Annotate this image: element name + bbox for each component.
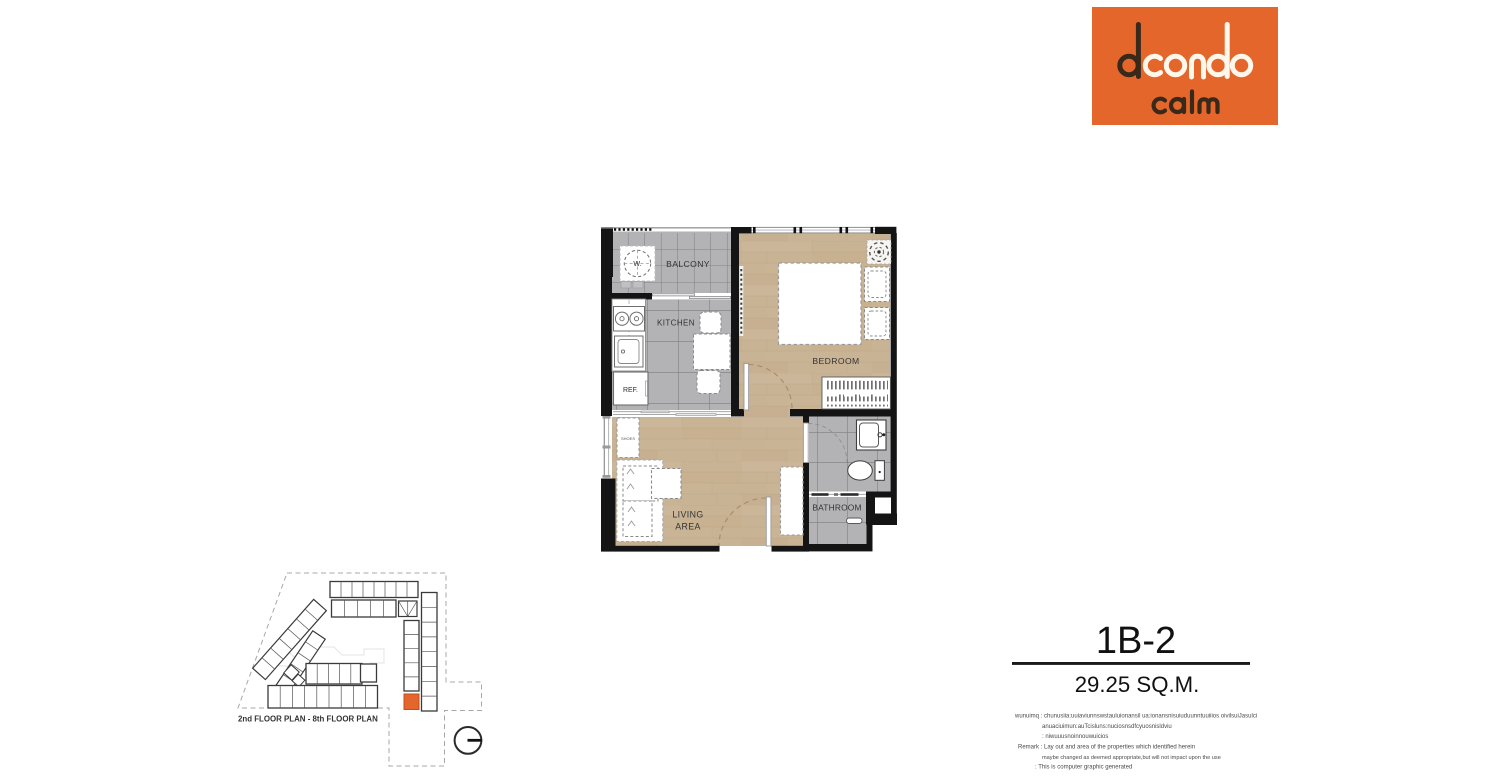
svg-text:: niwuuusnoinnouwuicios: : niwuuusnoinnouwuicios (1042, 734, 1108, 740)
svg-text:wunuimq : chunusiia:uuiaviunns: wunuimq : chunusiia:uuiaviunnswstauluion… (1014, 714, 1257, 720)
svg-text:anuaciuimun:auTcisluns:nuciosn: anuaciuimun:auTcisluns:nuciosnsdfcyuosni… (1042, 724, 1172, 730)
svg-text:: This is computer graphic gen: : This is computer graphic generated (1035, 765, 1132, 771)
svg-text:2nd FLOOR PLAN - 8th FLOOR PLA: 2nd FLOOR PLAN - 8th FLOOR PLAN (238, 715, 378, 724)
svg-text:KITCHEN: KITCHEN (657, 319, 695, 328)
svg-text:maybe changed as deemed approp: maybe changed as deemed appropriate,but … (1042, 755, 1221, 761)
svg-text:SHOES: SHOES (621, 436, 635, 441)
svg-text:REF.: REF. (623, 387, 638, 394)
svg-text:W.: W. (633, 260, 641, 268)
svg-text:LIVING: LIVING (672, 510, 703, 520)
svg-text:AREA: AREA (675, 522, 701, 532)
svg-text:BATHROOM: BATHROOM (812, 503, 861, 513)
svg-text:29.25 SQ.M.: 29.25 SQ.M. (1075, 672, 1200, 697)
svg-text:1B-2: 1B-2 (1096, 620, 1176, 662)
svg-text:BEDROOM: BEDROOM (812, 356, 859, 366)
svg-text:BALCONY: BALCONY (666, 259, 710, 269)
svg-text:Remark : Lay out and area of t: Remark : Lay out and area of the propert… (1018, 745, 1195, 751)
